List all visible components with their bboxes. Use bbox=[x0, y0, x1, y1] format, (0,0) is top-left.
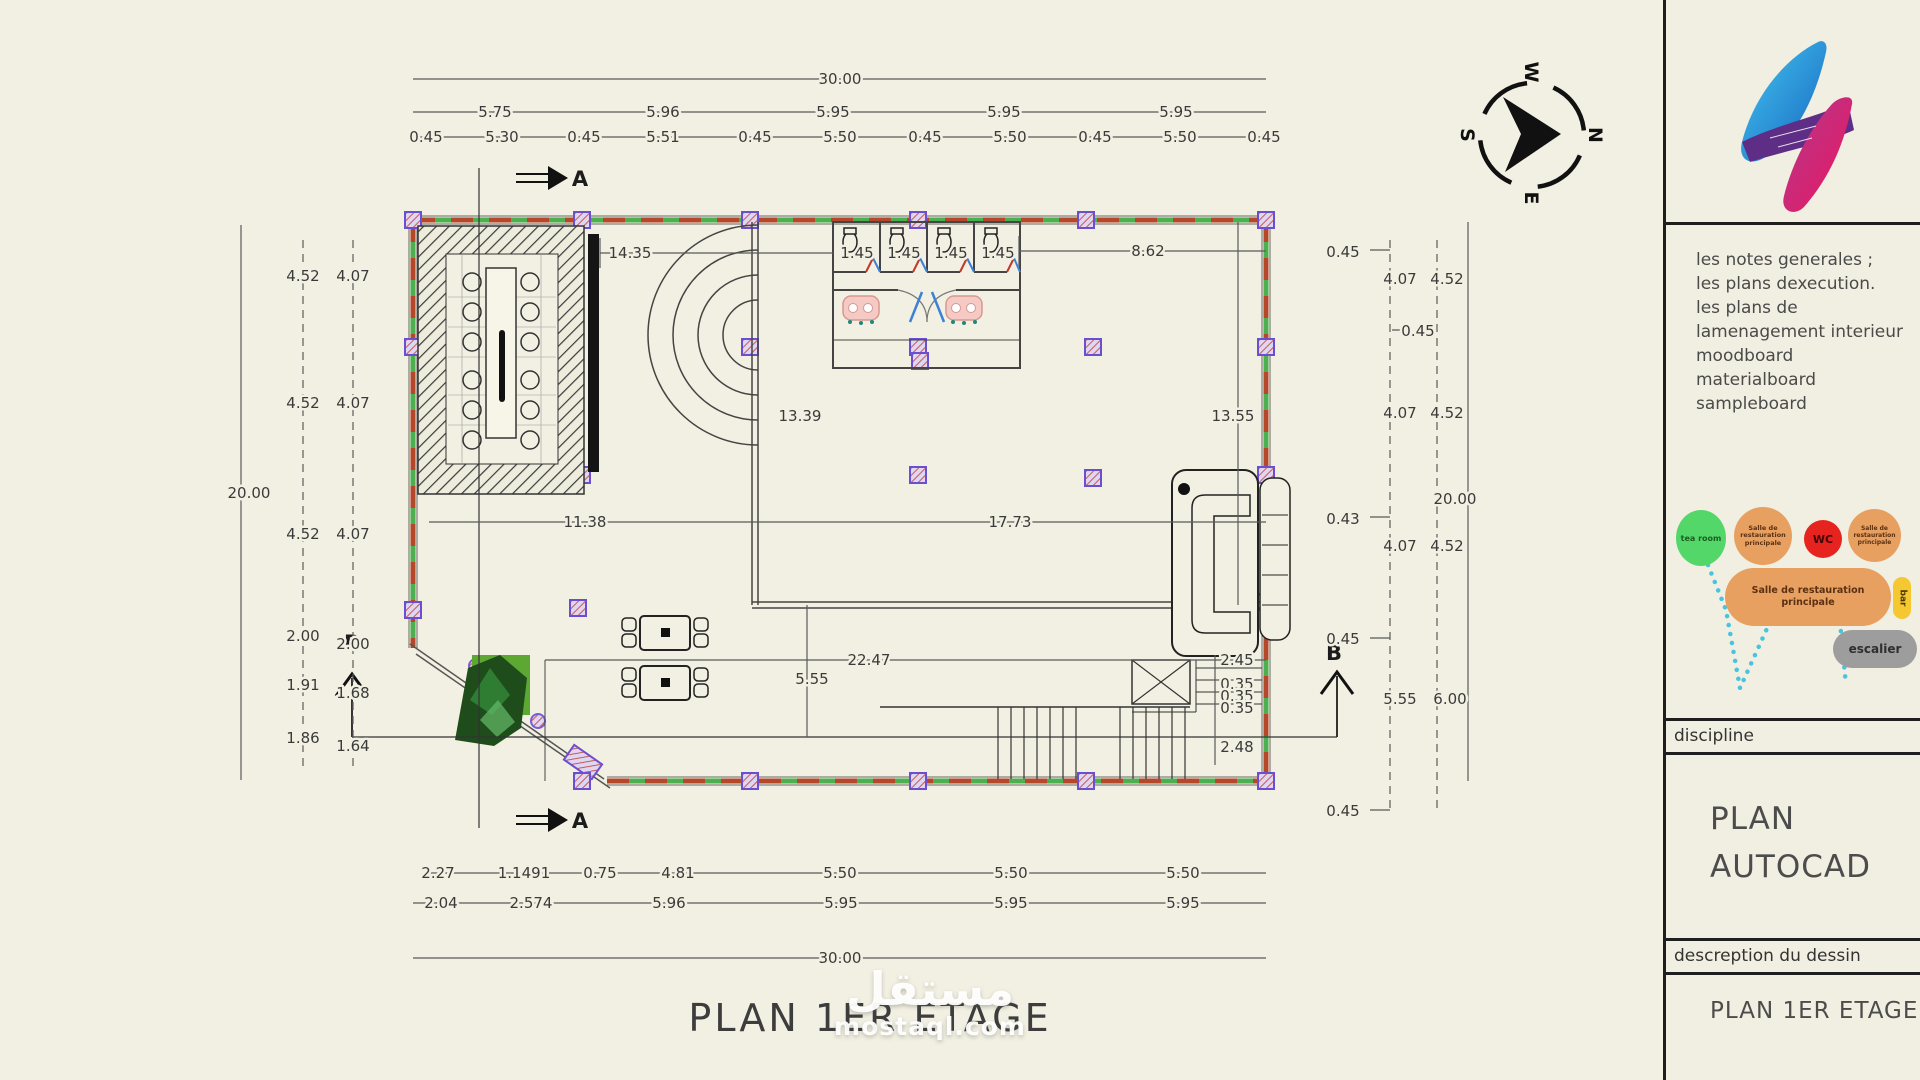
svg-text:5.50: 5.50 bbox=[993, 128, 1026, 146]
note-line: materialboard bbox=[1696, 368, 1911, 392]
svg-text:5.75: 5.75 bbox=[478, 103, 511, 121]
svg-text:4.52: 4.52 bbox=[1430, 404, 1463, 422]
sheet-title: PLAN 1ER ETAGE bbox=[640, 996, 1100, 1040]
svg-text:0.43: 0.43 bbox=[1326, 510, 1359, 528]
bubble-salle-main: Salle de restauration principale bbox=[1725, 568, 1891, 626]
discipline-value-line1: PLAN bbox=[1710, 795, 1871, 843]
svg-text:6.00: 6.00 bbox=[1433, 690, 1466, 708]
svg-text:5.96: 5.96 bbox=[652, 894, 685, 912]
compass-rose: W N E S bbox=[1456, 62, 1606, 205]
svg-text:1.91: 1.91 bbox=[286, 676, 319, 694]
svg-text:5.95: 5.95 bbox=[816, 103, 849, 121]
svg-text:0.45: 0.45 bbox=[738, 128, 771, 146]
svg-text:11.38: 11.38 bbox=[564, 513, 607, 531]
svg-text:5.96: 5.96 bbox=[646, 103, 679, 121]
svg-text:4.52: 4.52 bbox=[286, 267, 319, 285]
svg-text:0.45: 0.45 bbox=[1326, 802, 1359, 820]
svg-text:30.00: 30.00 bbox=[819, 949, 862, 967]
svg-text:1.45: 1.45 bbox=[887, 244, 920, 262]
stairs bbox=[880, 660, 1262, 779]
svg-text:1.45: 1.45 bbox=[934, 244, 967, 262]
svg-text:5.50: 5.50 bbox=[994, 864, 1027, 882]
note-line: moodboard bbox=[1696, 344, 1911, 368]
description-label: descreption du dessin bbox=[1674, 946, 1861, 966]
svg-text:4.52: 4.52 bbox=[286, 525, 319, 543]
bar-counter bbox=[1172, 470, 1290, 656]
description-value: PLAN 1ER ETAGE bbox=[1710, 998, 1918, 1024]
svg-text:0.45: 0.45 bbox=[1326, 630, 1359, 648]
entry-arcs bbox=[648, 225, 758, 445]
svg-text:5.95: 5.95 bbox=[1159, 103, 1192, 121]
svg-text:4.07: 4.07 bbox=[336, 267, 369, 285]
discipline-header: discipline bbox=[1666, 718, 1920, 755]
svg-text:5.50: 5.50 bbox=[1163, 128, 1196, 146]
svg-text:5.50: 5.50 bbox=[1166, 864, 1199, 882]
note-line: les notes generales ; bbox=[1696, 248, 1911, 272]
compass-needle bbox=[1503, 97, 1561, 172]
svg-text:2.27: 2.27 bbox=[421, 864, 454, 882]
svg-text:4.52: 4.52 bbox=[286, 394, 319, 412]
plant bbox=[455, 655, 530, 746]
svg-text:5.55: 5.55 bbox=[1383, 690, 1416, 708]
svg-text:5.50: 5.50 bbox=[823, 128, 856, 146]
svg-text:4.81: 4.81 bbox=[661, 864, 694, 882]
svg-text:1.45: 1.45 bbox=[840, 244, 873, 262]
svg-text:0.45: 0.45 bbox=[1078, 128, 1111, 146]
svg-text:20.00: 20.00 bbox=[228, 484, 271, 502]
bubble-escalier: escalier bbox=[1833, 630, 1917, 668]
svg-text:4.07: 4.07 bbox=[1383, 404, 1416, 422]
svg-text:5.95: 5.95 bbox=[987, 103, 1020, 121]
general-notes: les notes generales ; les plans dexecuti… bbox=[1696, 248, 1911, 416]
bubble-bar-label: bar bbox=[1897, 590, 1907, 607]
svg-text:0.45: 0.45 bbox=[1401, 322, 1434, 340]
svg-text:17.73: 17.73 bbox=[989, 513, 1032, 531]
svg-text:5.95: 5.95 bbox=[824, 894, 857, 912]
svg-text:4.52: 4.52 bbox=[1430, 270, 1463, 288]
discipline-label: discipline bbox=[1674, 726, 1754, 746]
svg-text:2.00: 2.00 bbox=[286, 627, 319, 645]
compass-north: N bbox=[1584, 127, 1606, 143]
svg-text:14.35: 14.35 bbox=[609, 244, 652, 262]
svg-text:5.30: 5.30 bbox=[485, 128, 518, 146]
section-label-a-top: A bbox=[572, 167, 589, 191]
bubble-salle-small-1: Salle de restauration principale bbox=[1734, 507, 1792, 565]
bubble-wc: WC bbox=[1804, 520, 1842, 558]
svg-text:4.07: 4.07 bbox=[336, 525, 369, 543]
svg-text:22.47: 22.47 bbox=[848, 651, 891, 669]
svg-text:5.95: 5.95 bbox=[994, 894, 1027, 912]
svg-text:1.45: 1.45 bbox=[981, 244, 1014, 262]
description-header: descreption du dessin bbox=[1666, 938, 1920, 975]
svg-text:1.64: 1.64 bbox=[336, 737, 369, 755]
note-line: les plans dexecution. bbox=[1696, 272, 1911, 296]
svg-text:0.45: 0.45 bbox=[908, 128, 941, 146]
svg-text:0.45: 0.45 bbox=[567, 128, 600, 146]
compass-south: S bbox=[1456, 128, 1478, 142]
svg-text:30.00: 30.00 bbox=[819, 70, 862, 88]
bubble-bar: bar bbox=[1893, 577, 1911, 619]
svg-text:0.45: 0.45 bbox=[409, 128, 442, 146]
svg-text:5.55: 5.55 bbox=[795, 670, 828, 688]
drawing-sheet: { "sheet": { "title": "PLAN 1ER ETAGE" }… bbox=[0, 0, 1920, 1080]
svg-text:0.75: 0.75 bbox=[583, 864, 616, 882]
svg-text:0.35: 0.35 bbox=[1220, 699, 1253, 717]
svg-text:0.45: 0.45 bbox=[1326, 243, 1359, 261]
svg-text:2.48: 2.48 bbox=[1220, 738, 1253, 756]
discipline-value: PLAN AUTOCAD bbox=[1710, 795, 1871, 891]
bubble-diagram: tea room Salle de restauration principal… bbox=[1666, 480, 1920, 712]
svg-text:20.00: 20.00 bbox=[1434, 490, 1477, 508]
svg-text:8.62: 8.62 bbox=[1131, 242, 1164, 260]
svg-text:13.39: 13.39 bbox=[779, 407, 822, 425]
compass-east: E bbox=[1520, 192, 1542, 205]
svg-text:2.04: 2.04 bbox=[424, 894, 457, 912]
svg-text:2.00: 2.00 bbox=[336, 635, 369, 653]
title-block-panel: les notes generales ; les plans dexecuti… bbox=[1663, 0, 1920, 1080]
svg-text:1.86: 1.86 bbox=[286, 729, 319, 747]
svg-text:4.07: 4.07 bbox=[336, 394, 369, 412]
svg-text:5.51: 5.51 bbox=[646, 128, 679, 146]
note-line: sampleboard bbox=[1696, 392, 1911, 416]
floor-plan-canvas: A A B B 30.00 5.75 5 bbox=[0, 0, 1663, 1080]
svg-text:2.574: 2.574 bbox=[510, 894, 553, 912]
meeting-room bbox=[418, 226, 599, 494]
dining-tables bbox=[622, 616, 708, 700]
section-label-a-bottom: A bbox=[572, 809, 589, 833]
bubble-salle-small-2: Salle de restauration principale bbox=[1848, 509, 1901, 562]
logo bbox=[1666, 0, 1920, 225]
note-line: les plans de bbox=[1696, 296, 1911, 320]
wall-screen bbox=[588, 234, 599, 472]
note-line: lamenagement interieur bbox=[1696, 320, 1911, 344]
discipline-value-line2: AUTOCAD bbox=[1710, 843, 1871, 891]
svg-text:5.95: 5.95 bbox=[1166, 894, 1199, 912]
svg-text:0.45: 0.45 bbox=[1247, 128, 1280, 146]
svg-text:2.45: 2.45 bbox=[1220, 651, 1253, 669]
bubble-tea-room: tea room bbox=[1676, 510, 1726, 566]
svg-text:4.07: 4.07 bbox=[1383, 537, 1416, 555]
svg-text:13.55: 13.55 bbox=[1212, 407, 1255, 425]
svg-text:4.07: 4.07 bbox=[1383, 270, 1416, 288]
svg-text:5.50: 5.50 bbox=[823, 864, 856, 882]
sinks bbox=[843, 296, 982, 325]
svg-text:4.52: 4.52 bbox=[1430, 537, 1463, 555]
svg-text:1.1491: 1.1491 bbox=[498, 864, 551, 882]
compass-west: W bbox=[1520, 62, 1542, 83]
svg-text:1.68: 1.68 bbox=[336, 684, 369, 702]
